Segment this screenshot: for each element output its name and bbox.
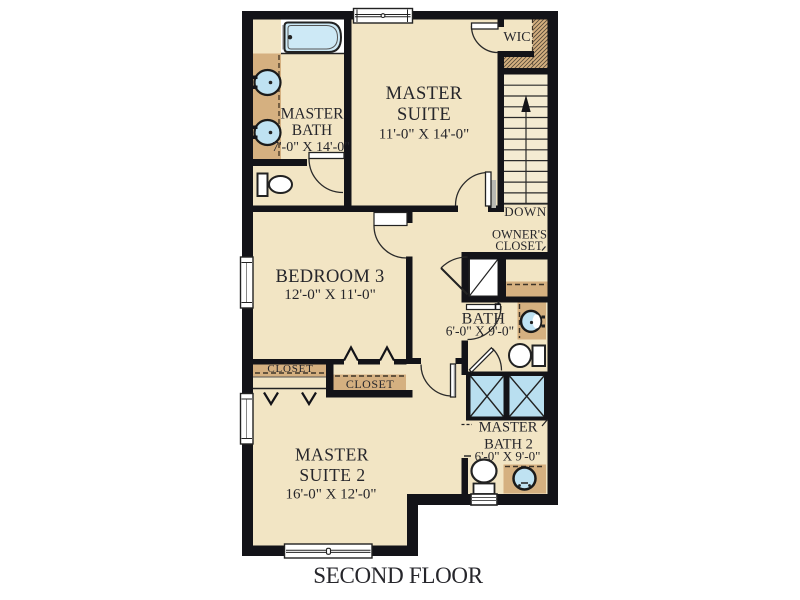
svg-text:MASTER: MASTER — [295, 445, 369, 465]
svg-text:WIC: WIC — [503, 30, 530, 45]
svg-text:BATH: BATH — [292, 122, 332, 139]
svg-text:CLOSET: CLOSET — [267, 363, 313, 375]
svg-text:CLOSET: CLOSET — [346, 377, 395, 391]
svg-text:SUITE: SUITE — [397, 105, 451, 125]
svg-text:7'-0" X 14'-0": 7'-0" X 14'-0" — [272, 140, 350, 155]
svg-text:SECOND FLOOR: SECOND FLOOR — [313, 563, 484, 588]
svg-text:BEDROOM 3: BEDROOM 3 — [275, 267, 384, 287]
svg-text:6'-0" X 9'-0": 6'-0" X 9'-0" — [475, 449, 541, 464]
svg-text:6'-0" X 9'-0": 6'-0" X 9'-0" — [446, 324, 514, 339]
svg-text:CLOSET: CLOSET — [495, 239, 543, 253]
svg-text:SUITE 2: SUITE 2 — [299, 465, 365, 485]
svg-text:DOWN: DOWN — [504, 204, 547, 219]
svg-text:11'-0" X 14'-0": 11'-0" X 14'-0" — [379, 127, 469, 143]
svg-text:16'-0" X 12'-0": 16'-0" X 12'-0" — [286, 487, 377, 503]
svg-text:MASTER: MASTER — [386, 84, 463, 104]
svg-text:12'-0" X 11'-0": 12'-0" X 11'-0" — [284, 286, 376, 303]
svg-text:MASTER: MASTER — [281, 106, 345, 123]
svg-text:MASTER: MASTER — [479, 420, 538, 436]
